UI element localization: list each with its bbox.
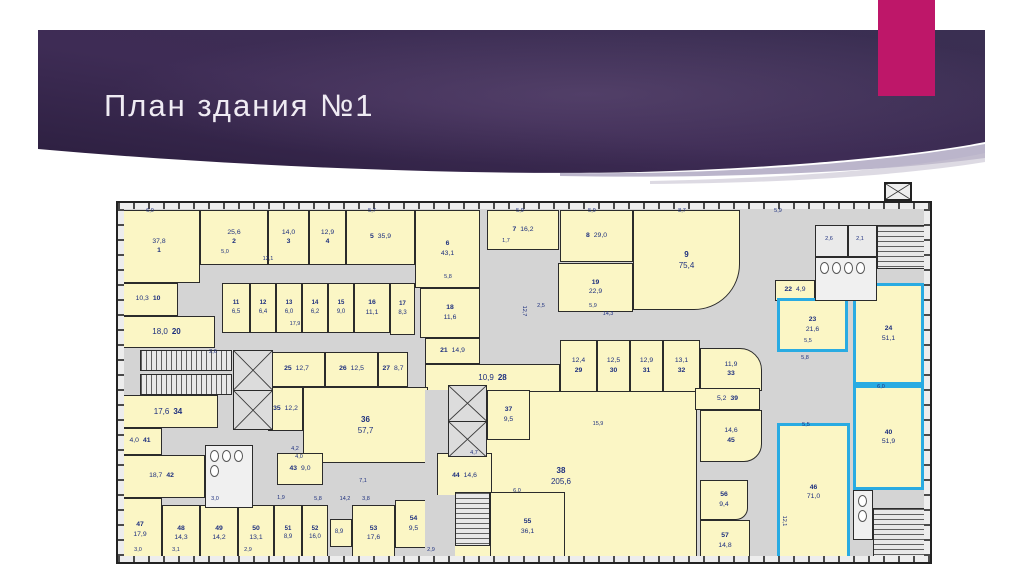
room-area: 205,6 [551,477,571,487]
room-number: 56 [720,491,728,499]
room-number: 15 [338,300,345,308]
dimension-label: 2,5 [537,303,545,309]
toilet-fixture-icon [222,450,231,462]
room-number: 16 [368,299,376,307]
room-number: 51 [285,526,292,534]
room-18: 1811,6 [420,288,480,338]
room-17: 178,3 [390,283,415,335]
dimension-label: 8,7 [678,208,686,214]
room-number: 26 [339,365,347,373]
room-34: 17,634 [118,395,218,428]
toilet-fixture-icon [234,450,243,462]
room-area: 12,2 [285,405,298,413]
elevator-cell [449,386,486,421]
room-41: 4,041 [118,428,162,455]
room-area: 22,9 [589,288,602,296]
room-area: 14,8 [718,542,731,550]
room-45: 14,645 [700,410,762,462]
room-area: 8,9 [335,529,343,537]
room-number: 32 [678,367,686,375]
room-area: 8,9 [284,534,292,542]
dimension-label: 12,7 [521,306,527,317]
staircase-west-upper [140,350,232,371]
room-area: 14,0 [282,229,295,237]
room-number: 22 [784,286,792,294]
room-number: 40 [885,429,893,437]
room-15: 159,0 [328,283,354,333]
room-area: 12,4 [572,357,585,365]
room-area: 18,7 [149,472,162,480]
room-number: 31 [643,367,651,375]
dimension-label: 5,8 [444,274,452,280]
room-46: 4671,0 [777,423,850,562]
room-area: 6,0 [285,309,293,317]
room-number: 47 [136,521,144,529]
dimension-label: 5,0 [221,249,229,255]
dimension-label: 4,7 [470,450,478,456]
roof-shaft [884,182,912,201]
dimension-label: 3,0 [211,496,219,502]
room-30: 12,530 [597,340,630,392]
toilet-fixture-icon [832,262,841,274]
room-number: 4 [326,238,330,246]
corridor-patch [425,390,448,453]
room-number: 6 [446,240,450,248]
wc-northeast [815,257,877,301]
dimension-label: 5,9 [589,303,597,309]
room-area: 8,3 [398,310,406,318]
room-number: 39 [730,395,738,403]
room-area: 9,5 [409,525,418,533]
toilet-fixture-icon [858,510,867,522]
dimension-label: 17,9 [290,321,301,327]
dimension-label: 5,5 [802,422,810,428]
room-27: 278,7 [378,352,408,387]
dimension-label: 4,2 [291,446,299,452]
room-36: 3657,7 [303,387,428,463]
room-number: 52 [312,526,319,534]
room-number: 50 [252,525,260,533]
room-number: 34 [173,407,182,417]
room-32: 13,132 [663,340,700,392]
room-number: 24 [885,325,893,333]
room-35: 3512,2 [268,387,303,431]
room-area: 14,9 [452,347,465,355]
room-14: 146,2 [302,283,328,333]
dimension-label: 5,8 [314,496,322,502]
dimension-label: 3,8 [362,496,370,502]
room-number: 54 [410,515,418,523]
room-area: 29,0 [594,232,607,240]
dimension-label: 6,0 [877,384,885,390]
toilet-fixture-icon [844,262,853,274]
room-area: 14,3 [174,534,187,542]
window-band-west [118,209,124,556]
room-50: 5013,1 [238,505,274,562]
room-number: 20 [172,327,181,337]
dimension-label: 5,5 [804,338,812,344]
accent-bar [878,0,935,96]
room-area: 8,7 [394,365,403,373]
room-area: 18,0 [152,327,168,337]
room-area: 10,3 [136,295,149,303]
dimension-label: 4,0 [295,454,303,460]
dimension-label: 6,0 [146,208,154,214]
room-25: 2512,7 [268,352,325,387]
dimension-label: 14,3 [603,311,614,317]
dimension-label: 14,2 [340,496,351,502]
room-area: 5,2 [717,395,726,403]
dimension-label: 2,6 [825,236,833,242]
room-area: 75,4 [679,261,695,271]
room-area: 57,7 [358,426,374,436]
room-area: 35,9 [378,233,391,241]
room-area: 16,2 [520,226,533,234]
room-area: 6,2 [311,309,319,317]
room-number: 3 [287,238,291,246]
dimension-label: 3,0 [134,547,142,553]
room-area: 6,4 [259,309,267,317]
room-4: 12,94 [309,210,346,265]
dimension-label: 15,9 [593,421,604,427]
room-area: 17,6 [367,534,380,542]
room-10: 10,310 [118,283,178,316]
room-51: 518,9 [274,505,302,562]
room-area: 51,9 [882,438,895,446]
room-number: 53 [370,525,378,533]
slide: План здания №1 37,8125,6214,0312,94535,9… [0,0,1024,574]
room-3: 14,03 [268,210,309,265]
dimension-label: 1,7 [502,238,510,244]
room-area: 14,6 [724,427,737,435]
room-area: 12,9 [640,357,653,365]
staircase-northeast [877,225,926,269]
window-band-east [924,209,930,556]
room-21: 2114,9 [425,338,480,364]
toilet-fixture-icon [858,495,867,507]
room-number: 46 [810,484,818,492]
wc-southeast [853,490,873,540]
room-area: 10,9 [478,373,494,383]
elevator-cell [449,421,486,457]
dimension-label: 5,8 [801,355,809,361]
room-1: 37,81 [118,210,200,283]
room-number: 5 [370,233,374,241]
corridor-patch [432,495,455,562]
room-52: 5216,0 [302,505,328,562]
room-area: 43,1 [441,250,454,258]
room-40: 4051,9 [853,385,924,490]
page-title: План здания №1 [104,88,375,124]
room-number: 11 [233,300,239,308]
dimension-label: 2,9 [427,547,435,553]
room-area: 6,5 [232,309,240,317]
room-area: 37,8 [152,238,165,246]
room-area: 12,5 [607,357,620,365]
room-number: 19 [592,279,600,287]
dimension-label: 7,1 [359,478,367,484]
room-number: 8 [586,232,590,240]
dimension-label: 1,9 [277,495,285,501]
room-31: 12,931 [630,340,663,392]
room-28: 10,928 [425,364,560,392]
dimension-label: 2,9 [244,547,252,553]
room-number: 57 [721,532,729,540]
room-49: 4914,2 [200,505,238,562]
room-area: 17,9 [133,531,146,539]
dimension-label: 3,1 [172,547,180,553]
room-area: 12,9 [321,229,334,237]
room-42: 18,742 [118,455,205,498]
room-23: 2321,6 [777,298,848,352]
staircase-west-lower [140,374,232,395]
window-band-north [118,203,930,209]
dimension-label: 5,7 [368,208,376,214]
room-number: 9 [684,250,688,260]
room-area: 25,6 [227,229,240,237]
staircase-southeast [873,508,928,562]
room-9: 975,4 [633,210,740,310]
room-area: 12,7 [296,365,309,373]
room-area: 16,0 [309,534,321,542]
room-number: 35 [273,405,281,413]
room-number: 23 [809,316,817,324]
room-number: 33 [727,370,735,378]
room-number: 43 [289,465,297,473]
room-5: 535,9 [346,210,415,265]
dimension-label: 5,9 [774,208,782,214]
room-number: 44 [452,472,460,480]
dimension-label: 5,9 [588,208,596,214]
room-number: 48 [177,525,185,533]
toilet-fixture-icon [210,450,219,462]
room-8: 829,0 [560,210,633,262]
room-area: 71,0 [807,493,820,501]
room-area: 4,0 [129,437,138,445]
staircase-central [455,492,490,546]
room-area: 9,4 [719,501,728,509]
room-area: 9,0 [301,465,310,473]
toilet-fixture-icon [856,262,865,274]
room-number: 10 [153,295,161,303]
room-37: 379,5 [487,390,530,440]
room-unnumbered-52: 8,9 [330,519,352,547]
room-11: 116,5 [222,283,250,333]
room-area: 14,6 [464,472,477,480]
room-number: 28 [498,373,507,383]
room-48: 4814,3 [162,505,200,562]
room-area: 13,1 [249,534,262,542]
room-number: 1 [157,247,161,255]
toilet-fixture-icon [210,465,219,477]
room-number: 37 [505,406,513,414]
room-area: 4,9 [796,286,805,294]
room-2: 25,62 [200,210,268,265]
room-number: 13 [286,300,293,308]
dimension-label: 5,9 [516,208,524,214]
room-area: 36,1 [521,528,534,536]
room-number: 42 [166,472,174,480]
room-56: 569,4 [700,480,748,520]
elevator-cell [234,351,272,390]
room-number: 36 [361,415,370,425]
room-number: 29 [575,367,583,375]
room-39: 5,239 [695,388,760,410]
room-55: 5536,1 [490,492,565,562]
dimension-label: 2,1 [856,236,864,242]
room-number: 2 [232,238,236,246]
room-number: 45 [727,437,735,445]
window-band-south [118,556,930,562]
dimension-label: 12,1 [263,256,274,262]
room-7: 716,2 [487,210,559,250]
elevator-west [233,350,273,430]
room-area: 11,6 [444,314,457,322]
dimension-label: 2,6 [209,349,217,355]
room-area: 11,9 [725,361,738,369]
room-number: 21 [440,347,448,355]
room-26: 2612,5 [325,352,378,387]
room-number: 17 [399,301,406,309]
dimension-label: 6,0 [513,488,521,494]
room-number: 25 [284,365,292,373]
room-number: 41 [143,437,151,445]
room-area: 14,2 [212,534,225,542]
room-number: 55 [524,518,532,526]
room-number: 18 [446,304,454,312]
room-12: 126,4 [250,283,276,333]
room-29: 12,429 [560,340,597,392]
room-area: 21,6 [806,326,819,334]
room-area: 12,5 [351,365,364,373]
room-area: 11,1 [366,309,379,317]
room-number: 49 [215,525,223,533]
room-53: 5317,6 [352,505,395,562]
room-number: 7 [512,226,516,234]
room-number: 14 [312,300,319,308]
room-number: 27 [382,365,390,373]
elevator-cell [234,390,272,430]
room-number: 38 [557,466,566,476]
room-number: 30 [610,367,618,375]
room-area: 13,1 [675,357,688,365]
room-20: 18,020 [118,316,215,348]
room-area: 51,1 [882,335,895,343]
elevator-central [448,385,487,457]
room-16: 1611,1 [354,283,390,333]
room-area: 17,6 [154,407,170,417]
room-area: 9,5 [504,416,513,424]
dimension-label: 12,1 [781,516,787,527]
floor-plan: 37,8125,6214,0312,94535,9643,1716,2829,0… [116,201,932,564]
room-number: 12 [260,300,267,308]
room-33: 11,933 [700,348,762,391]
toilet-fixture-icon [820,262,829,274]
room-area: 9,0 [337,309,345,317]
